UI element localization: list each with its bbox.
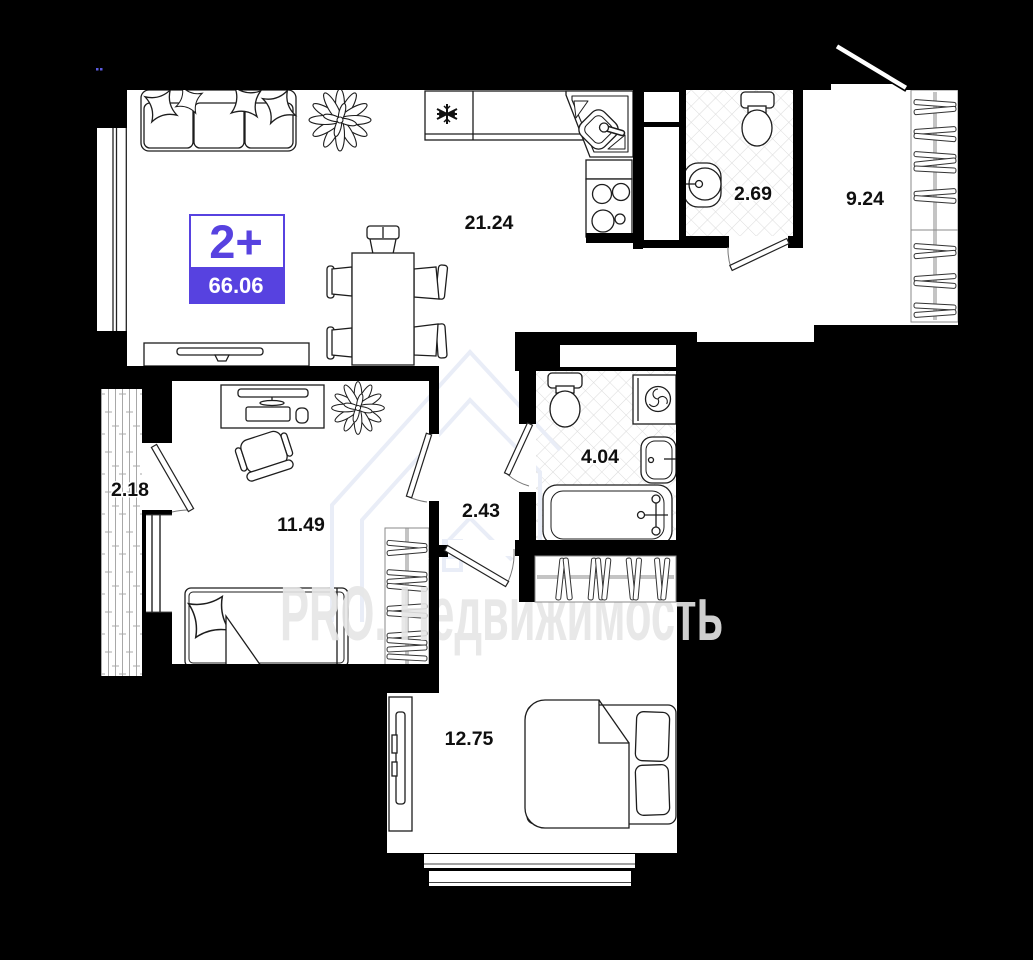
svg-text:11.49: 11.49 — [277, 514, 325, 536]
svg-text:21.24: 21.24 — [465, 212, 514, 234]
svg-text:12.75: 12.75 — [445, 728, 494, 750]
svg-text:2.18: 2.18 — [111, 479, 149, 501]
svg-text:66.06: 66.06 — [208, 273, 263, 298]
svg-text:2.43: 2.43 — [462, 500, 500, 522]
svg-text:2.69: 2.69 — [734, 183, 772, 205]
svg-text:2+: 2+ — [209, 215, 263, 268]
svg-text:4.04: 4.04 — [581, 446, 619, 468]
svg-text:9.24: 9.24 — [846, 188, 884, 210]
